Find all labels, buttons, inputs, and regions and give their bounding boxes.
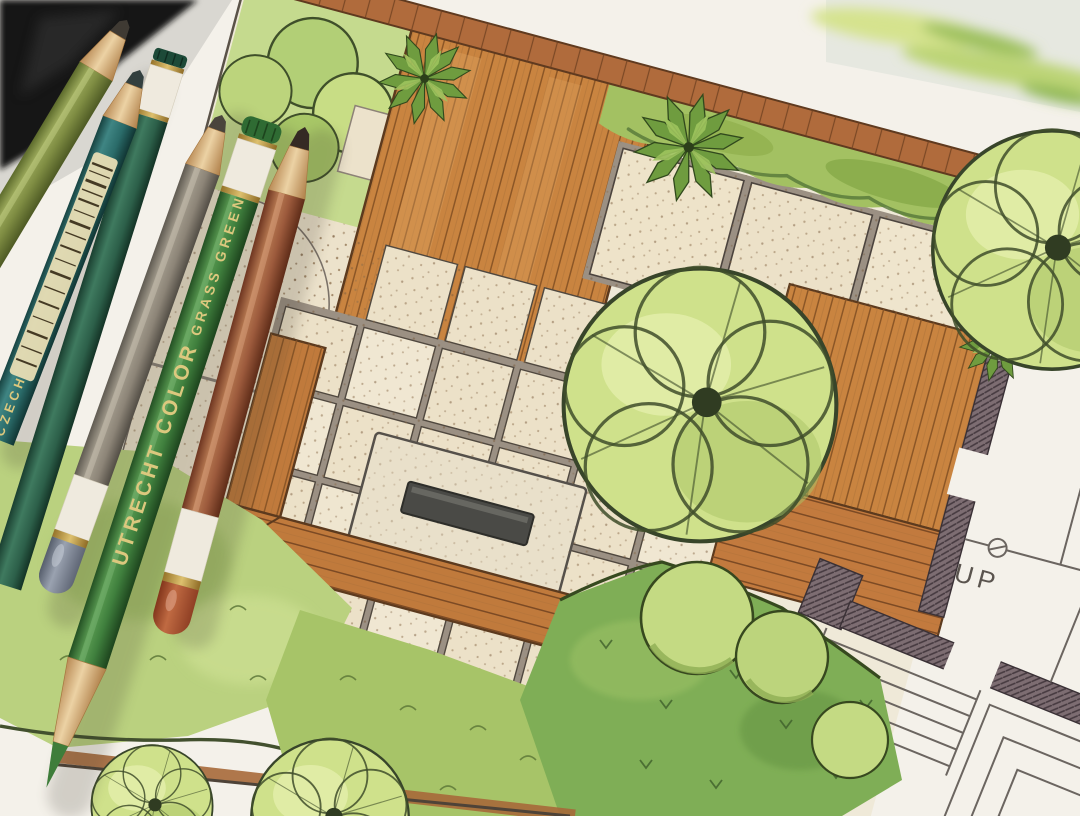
big-tree-canopy xyxy=(564,267,837,541)
photo-of-garden-plan: UP xyxy=(0,0,1080,816)
photo-canvas: UP xyxy=(0,0,1080,816)
